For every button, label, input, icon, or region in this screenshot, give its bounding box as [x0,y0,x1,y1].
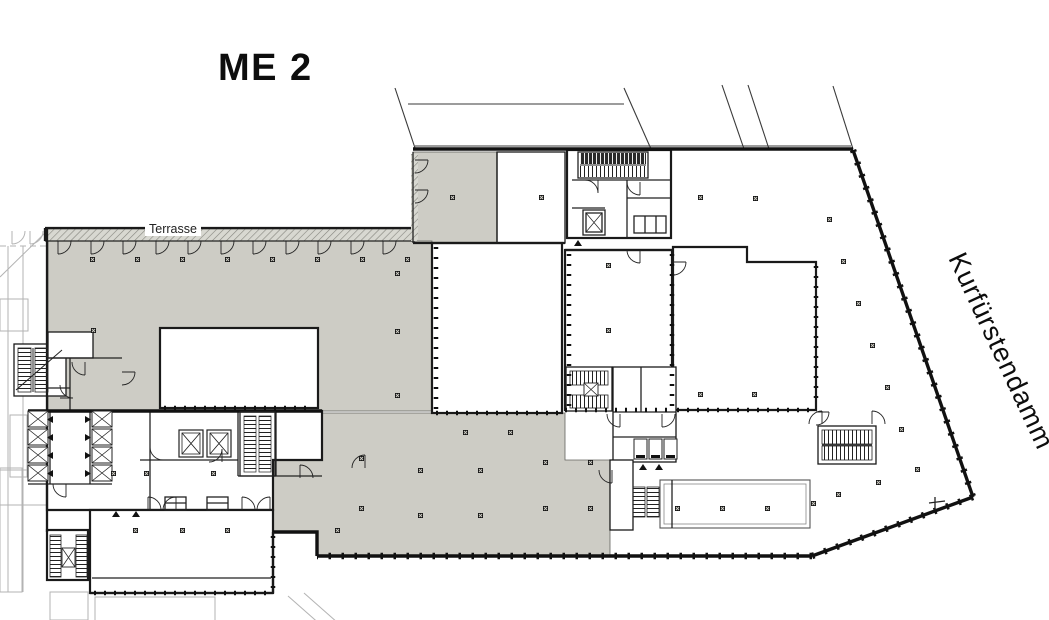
terrace-band [45,229,415,241]
shaded-area-south [273,413,610,556]
room-below-cluster [610,460,633,530]
unit-title: ME 2 [218,47,313,89]
terrace-label: Terrasse [149,222,197,236]
property-lines [395,85,853,149]
room-north [497,152,565,243]
terrace: Terrasse [45,220,415,241]
room-large-1 [432,243,562,413]
room-large-3 [673,247,816,410]
wing-room-south [90,510,273,593]
elevator-bank-cluster [634,439,677,459]
skylight-opening [660,480,810,528]
staircase-east [822,430,872,460]
vestibule-rooms [48,332,93,358]
room-large-west [160,328,318,408]
street-label: Kurfürstendamm [943,248,1049,454]
floor-plan-drawing: Terrasse [0,0,1049,620]
staircase-north-core [578,152,648,178]
floor-plan-page: Terrasse [0,0,1049,620]
staircase-south-center [633,487,659,517]
